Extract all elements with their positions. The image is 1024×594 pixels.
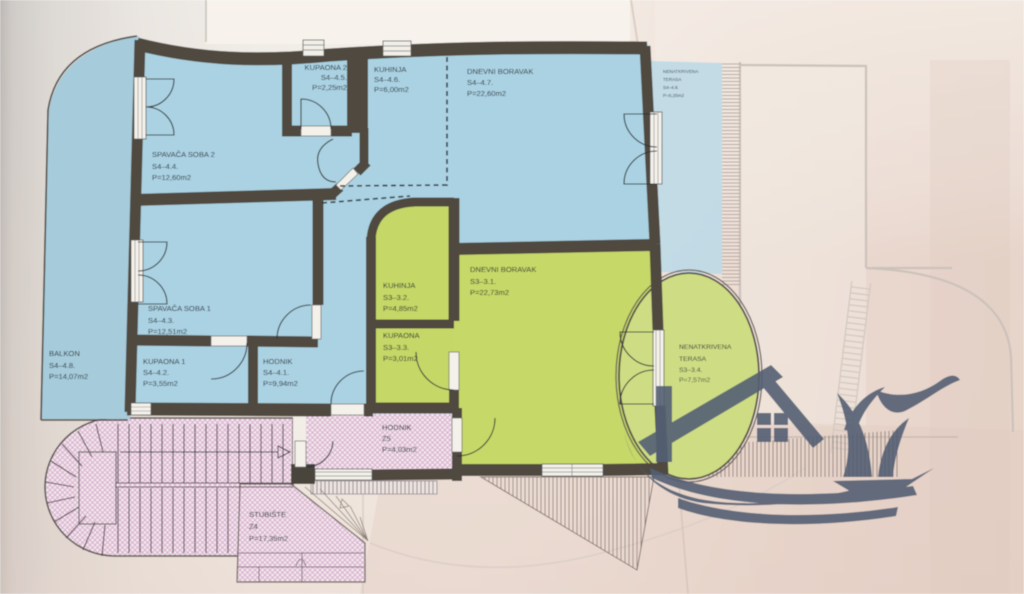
- svg-text:P=3,01m2: P=3,01m2: [383, 354, 418, 363]
- svg-text:SPAVAČA SOBA 1: SPAVAČA SOBA 1: [148, 304, 211, 313]
- svg-text:S4–4.2.: S4–4.2.: [143, 368, 169, 377]
- svg-text:BALKON: BALKON: [49, 349, 80, 358]
- svg-text:S3–3.3.: S3–3.3.: [383, 343, 409, 352]
- svg-text:P=6,00m2: P=6,00m2: [374, 85, 409, 94]
- svg-text:HODNIK: HODNIK: [382, 423, 412, 432]
- svg-text:S4–4.8.: S4–4.8.: [49, 361, 75, 370]
- svg-text:S4–4.6.: S4–4.6.: [374, 75, 400, 84]
- svg-text:P=4,85m2: P=4,85m2: [383, 304, 418, 313]
- svg-text:P=3,55m2: P=3,55m2: [143, 379, 178, 388]
- svg-text:P=6,25m2: P=6,25m2: [663, 93, 685, 98]
- svg-text:S4–4.1.: S4–4.1.: [263, 368, 289, 377]
- svg-text:S4–4.5.: S4–4.5.: [321, 73, 347, 82]
- svg-text:P=14,07m2: P=14,07m2: [49, 372, 88, 381]
- svg-text:S4–4.3.: S4–4.3.: [148, 316, 174, 325]
- svg-text:S4–4.7.: S4–4.7.: [467, 78, 493, 87]
- svg-text:P=12,51m2: P=12,51m2: [148, 327, 187, 336]
- svg-text:Z5: Z5: [382, 434, 391, 443]
- svg-text:P=22,73m2: P=22,73m2: [470, 288, 509, 297]
- svg-text:SPAVAČA SOBA 2: SPAVAČA SOBA 2: [152, 150, 215, 159]
- svg-text:KUHINJA: KUHINJA: [383, 281, 416, 290]
- svg-text:STUBIŠTE: STUBIŠTE: [249, 510, 286, 519]
- svg-text:KUPAONA 2: KUPAONA 2: [305, 63, 347, 72]
- svg-text:P=17,35m2: P=17,35m2: [249, 534, 288, 543]
- svg-text:S3–3.2.: S3–3.2.: [383, 293, 409, 302]
- svg-text:Z4: Z4: [249, 522, 258, 531]
- svg-text:S3–3.1.: S3–3.1.: [470, 277, 496, 286]
- svg-text:NENATKRIVENA: NENATKRIVENA: [663, 69, 699, 74]
- svg-text:DNEVNI BORAVAK: DNEVNI BORAVAK: [470, 265, 536, 274]
- svg-text:P=12,60m2: P=12,60m2: [152, 173, 191, 182]
- svg-text:S4–4.8.: S4–4.8.: [663, 85, 679, 90]
- svg-text:DNEVNI BORAVAK: DNEVNI BORAVAK: [467, 67, 533, 76]
- svg-text:P=4,03m2: P=4,03m2: [382, 445, 417, 454]
- svg-text:P=7,57m2: P=7,57m2: [679, 377, 710, 384]
- svg-text:S3–3.4.: S3–3.4.: [679, 367, 703, 374]
- svg-text:P=2,25m2: P=2,25m2: [312, 83, 347, 92]
- svg-text:KUPAONA: KUPAONA: [383, 331, 421, 340]
- svg-text:P=22,60m2: P=22,60m2: [467, 89, 506, 98]
- svg-text:KUPAONA 1: KUPAONA 1: [143, 357, 185, 366]
- svg-text:NENATKRIVENA: NENATKRIVENA: [679, 344, 732, 351]
- svg-text:KUHINJA: KUHINJA: [374, 65, 407, 74]
- svg-text:HODNIK: HODNIK: [263, 357, 293, 366]
- svg-text:S4–4.4.: S4–4.4.: [152, 162, 178, 171]
- svg-text:TERASA: TERASA: [663, 77, 682, 82]
- svg-text:P=9,94m2: P=9,94m2: [263, 379, 298, 388]
- svg-text:TERASA: TERASA: [679, 356, 707, 363]
